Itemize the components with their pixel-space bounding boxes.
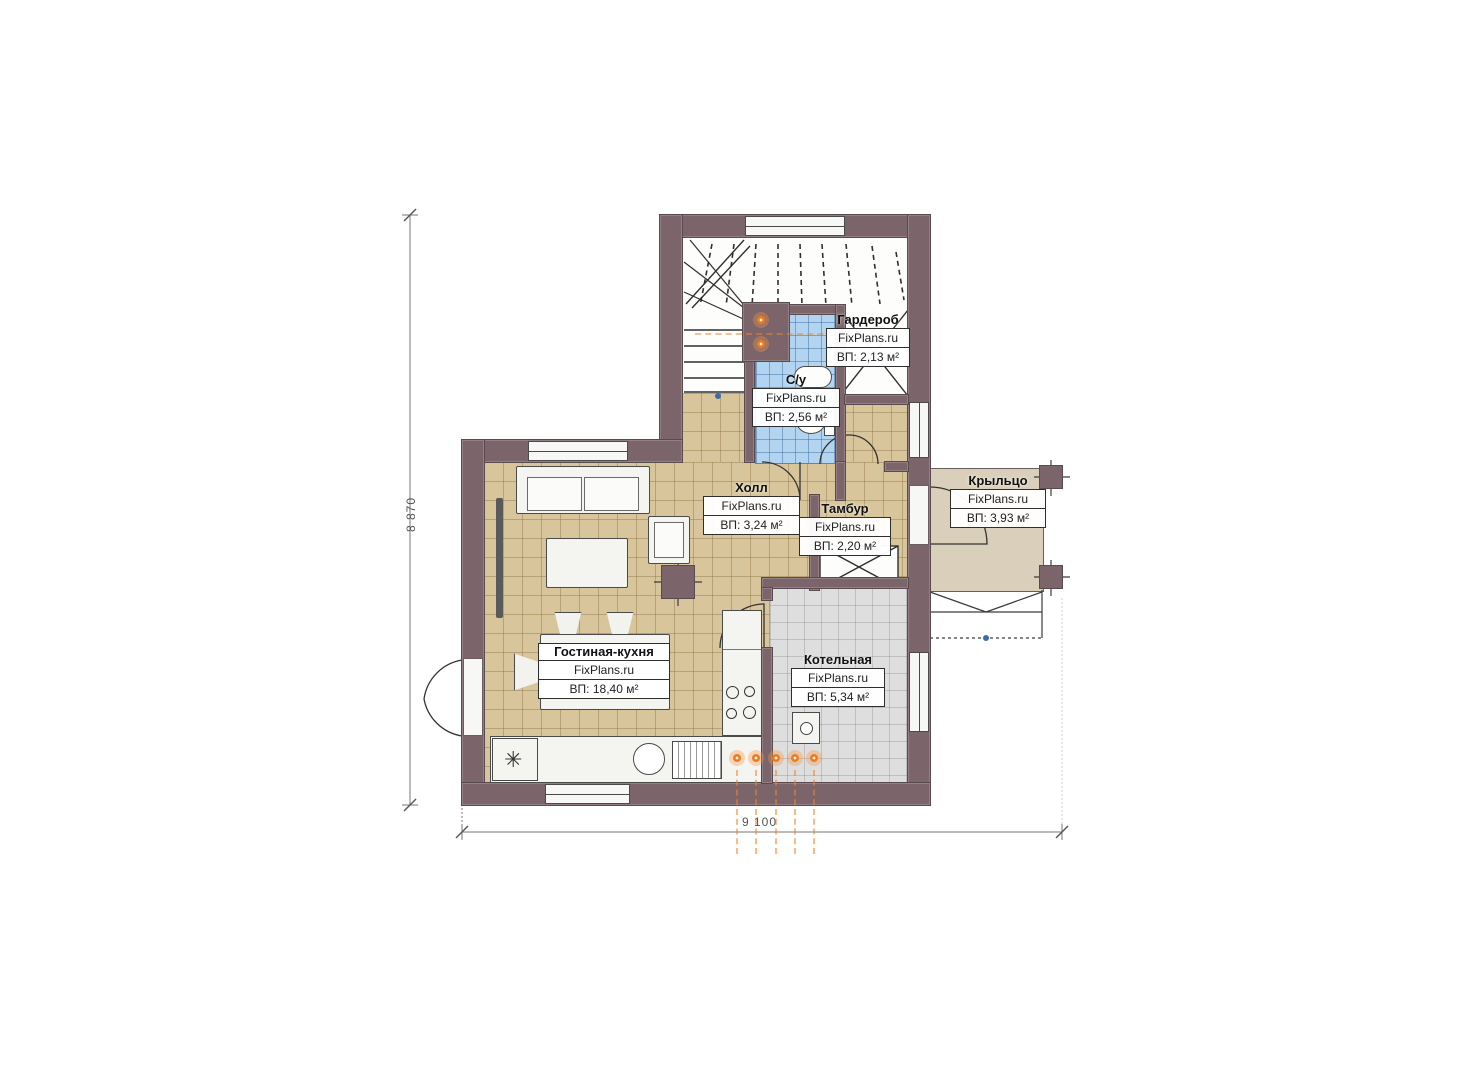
room-name: Гардероб [826,312,910,328]
stairs-marker-dot [715,393,721,399]
chimney-block [743,303,789,361]
entrance-door-gap [909,485,929,545]
window-bottom [545,784,630,804]
heating-riser-dot [757,340,765,348]
heating-drop-line [813,770,815,854]
dimension-label-width: 9 100 [742,815,777,829]
room-label-porch: Крыльцо FixPlans.ru ВП: 3,93 м² [950,473,1046,528]
wall-wardrobe-bottom [845,395,908,404]
porch-column-bottom [1040,566,1062,588]
stove-burner-1 [726,686,739,699]
watermark: FixPlans.ru [792,669,884,688]
wall-bottom [462,783,930,805]
stove-burner-3 [726,708,737,719]
wall-left-lower [462,440,484,805]
room-area: ВП: 3,24 м² [704,516,799,534]
window-top [745,216,845,236]
watermark: FixPlans.ru [539,661,669,680]
wall-boiler-top [762,578,908,588]
stairs-upper-treads [700,244,904,306]
watermark: FixPlans.ru [753,389,839,408]
room-area: ВП: 3,93 м² [951,509,1045,527]
room-name: Крыльцо [950,473,1046,489]
wall-hall-tambour-right [885,462,908,471]
room-area: ВП: 5,34 м² [792,688,884,706]
heating-pipe-dot [752,754,760,762]
room-name: Тамбур [799,501,891,517]
heating-riser-dot [757,316,765,324]
stove-burner-2 [744,686,755,697]
room-label-bathroom: С/у FixPlans.ru ВП: 2,56 м² [752,372,840,427]
heating-drop-line [736,770,738,854]
window-living-top [528,441,628,461]
stairs-lower-treads [684,330,748,392]
room-name: Гостиная-кухня [538,643,670,660]
wall-left-upper [660,215,682,462]
living-column [662,566,694,598]
room-label-living-kitchen: Гостиная-кухня FixPlans.ru ВП: 18,40 м² [538,643,670,699]
boiler-unit [792,712,820,744]
heating-drop-line [775,770,777,854]
sofa [516,466,650,514]
wall-boiler-left-b [762,648,772,783]
coffee-table [546,538,628,588]
heating-pipe-dot [791,754,799,762]
watermark: FixPlans.ru [800,518,890,537]
tambour-door-arc [820,435,878,464]
room-name: Холл [703,480,800,496]
plan-linework [0,0,1473,1080]
exterior-door-gap-left [463,658,483,736]
dish-drainer [672,741,722,779]
exterior-door-arc-left-lower [424,699,462,736]
stove-burner-4 [743,706,756,719]
heating-pipe-dot [810,754,818,762]
wall-hall-tambour-left [836,462,845,500]
room-name: Котельная [791,652,885,668]
heating-drop-line [794,770,796,854]
dimension-label-height: 8 870 [404,497,418,532]
room-label-boiler: Котельная FixPlans.ru ВП: 5,34 м² [791,652,885,707]
armchair [648,516,690,564]
fridge-snowflake-icon: ✳ [504,749,522,771]
room-name: С/у [752,372,840,388]
tv-unit [496,498,503,618]
heating-drop-line [755,770,757,854]
room-label-wardrobe: Гардероб FixPlans.ru ВП: 2,13 м² [826,312,910,367]
exterior-door-arc-left-upper [424,660,462,699]
kitchen-sink [633,743,665,775]
wall-boiler-left-a [762,588,772,600]
room-area: ВП: 18,40 м² [539,680,669,698]
watermark: FixPlans.ru [827,329,909,348]
floor-plan-canvas: ✳ Гардероб FixPlans.ru ВП: 2,13 м² С/у F… [0,0,1473,1080]
heating-pipe-dot [772,754,780,762]
room-area: ВП: 2,56 м² [753,408,839,426]
watermark: FixPlans.ru [704,497,799,516]
room-area: ВП: 2,20 м² [800,537,890,555]
watermark: FixPlans.ru [951,490,1045,509]
window-boiler [909,652,929,732]
window-hall-right [909,402,929,458]
room-label-tambour: Тамбур FixPlans.ru ВП: 2,20 м² [799,501,891,556]
room-area: ВП: 2,13 м² [827,348,909,366]
porch-steps [930,590,1042,641]
room-label-hall: Холл FixPlans.ru ВП: 3,24 м² [703,480,800,535]
heating-pipe-dot [733,754,741,762]
